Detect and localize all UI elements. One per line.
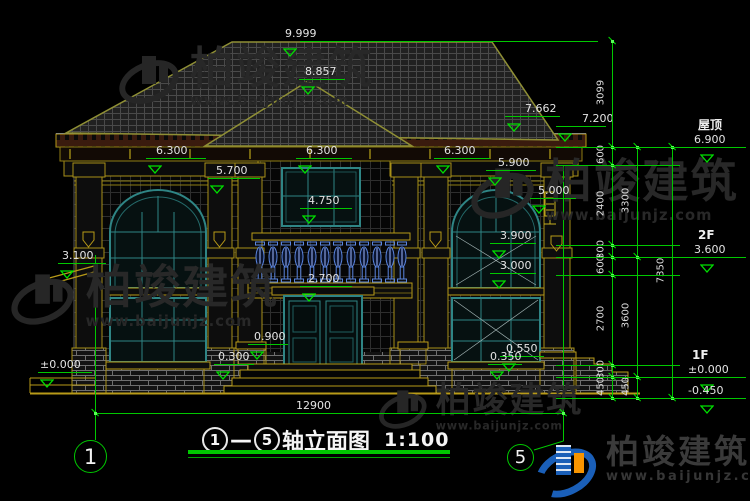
axis-bubble: 1: [74, 440, 107, 473]
dim-chain-label: 3099: [596, 61, 607, 125]
level-triangle-icon: [700, 399, 714, 418]
level-triangle-icon: [436, 159, 450, 178]
level-triangle-icon: [298, 159, 312, 178]
title-dash: —: [230, 428, 252, 453]
elevation-label: 4.750: [308, 195, 340, 206]
extension-line: [556, 398, 680, 399]
elevation-drawing-canvas: 柏竣建筑www.baijunjz.com柏竣建筑www.baijunjz.com…: [0, 0, 750, 501]
level-triangle-icon: [492, 274, 506, 293]
elevation-label: 6.300: [156, 145, 188, 156]
extension-line: [556, 165, 680, 166]
axis-bubble: 5: [507, 444, 534, 471]
elevation-label: 8.857: [305, 66, 337, 77]
dim-tick-dot: [562, 412, 565, 415]
elevation-label: 5.000: [538, 185, 570, 196]
elevation-label: 3.000: [500, 260, 532, 271]
extension-line: [556, 275, 680, 276]
level-triangle-icon: [301, 80, 315, 99]
extension-line: [556, 147, 680, 148]
level-triangle-icon: [302, 209, 316, 228]
overall-dim-label: 12900: [296, 400, 331, 411]
level-triangle-icon: [216, 365, 230, 384]
extension-line: [556, 245, 680, 246]
extension-line: [556, 377, 680, 378]
dim-chain-line: [672, 147, 673, 398]
elevation-label: 6.300: [444, 145, 476, 156]
title-scale: 1:100: [384, 429, 449, 451]
elevation-label: 5.700: [216, 165, 248, 176]
overall-dim-line: [95, 413, 563, 414]
elevation-label: 3.600: [694, 244, 726, 255]
elevation-label: 6.900: [694, 134, 726, 145]
floor-tag: 2F: [698, 229, 715, 241]
elevation-label: 7.662: [525, 103, 557, 114]
elevation-label: 0.900: [254, 331, 286, 342]
level-triangle-icon: [532, 199, 546, 218]
dim-chain-line: [637, 147, 638, 398]
elevation-label: ±0.000: [40, 359, 81, 370]
level-triangle-icon: [283, 42, 297, 61]
dim-tick-dot: [94, 412, 97, 415]
elevation-label: 3.100: [62, 250, 94, 261]
level-triangle-icon: [507, 117, 521, 136]
floor-tag: 屋顶: [698, 119, 722, 131]
dim-chain-label: 7350: [656, 239, 667, 303]
extension-line: [556, 257, 680, 258]
level-triangle-icon: [488, 171, 502, 190]
dim-chain-label: 3600: [621, 284, 632, 348]
brand-site: www.baijunjz.com: [606, 469, 750, 484]
level-triangle-icon: [700, 258, 714, 277]
elevation-label: 3.900: [500, 230, 532, 241]
level-triangle-icon: [60, 264, 74, 283]
title-underline: [188, 450, 450, 454]
elevation-label: 6.300: [306, 145, 338, 156]
elevation-label: 2.700: [308, 273, 340, 284]
brand-logo: 柏竣建筑 www.baijunjz.com: [534, 437, 750, 495]
elevation-label: 5.900: [498, 157, 530, 168]
elevation-label: ±0.000: [688, 364, 729, 375]
level-triangle-icon: [700, 148, 714, 167]
elevation-label: 0.350: [490, 351, 522, 362]
elevation-label: 9.999: [285, 28, 317, 39]
level-triangle-icon: [490, 365, 504, 384]
level-triangle-icon: [148, 159, 162, 178]
title-underline-thin: [188, 457, 450, 458]
extension-line: [556, 365, 680, 366]
floor-tag: 1F: [692, 349, 709, 361]
dim-tick-dot: [611, 40, 614, 43]
level-triangle-icon: [40, 373, 54, 392]
elevation-label: -0.450: [688, 385, 723, 396]
elevation-label: 0.300: [218, 351, 250, 362]
dim-chain-line: [612, 41, 613, 398]
level-triangle-icon: [558, 127, 572, 146]
level-triangle-icon: [250, 345, 264, 364]
level-triangle-icon: [210, 179, 224, 198]
level-triangle-icon: [302, 287, 316, 306]
dim-chain-label: 3300: [621, 169, 632, 233]
brand-logo-icon: [534, 437, 598, 495]
brand-name: 柏竣建筑: [606, 437, 750, 467]
